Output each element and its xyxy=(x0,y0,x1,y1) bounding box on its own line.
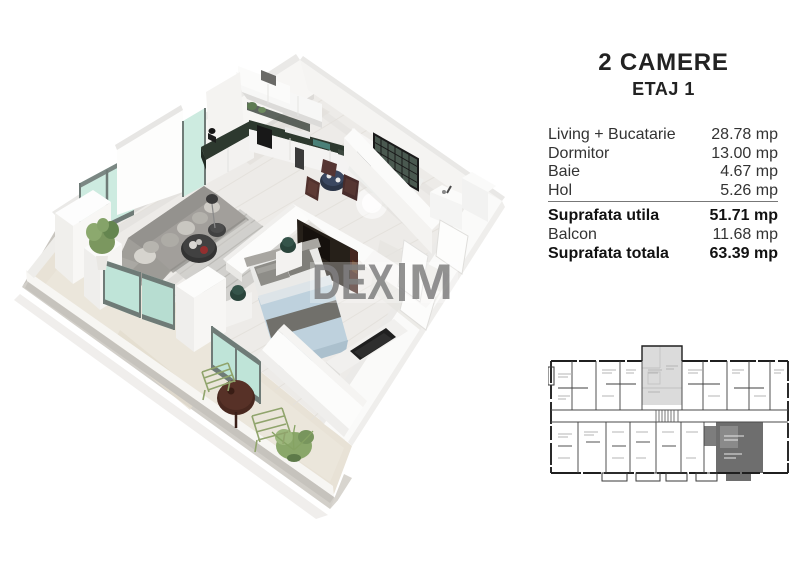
svg-text:DEX: DEX xyxy=(312,254,394,310)
svg-text:M: M xyxy=(409,254,453,310)
